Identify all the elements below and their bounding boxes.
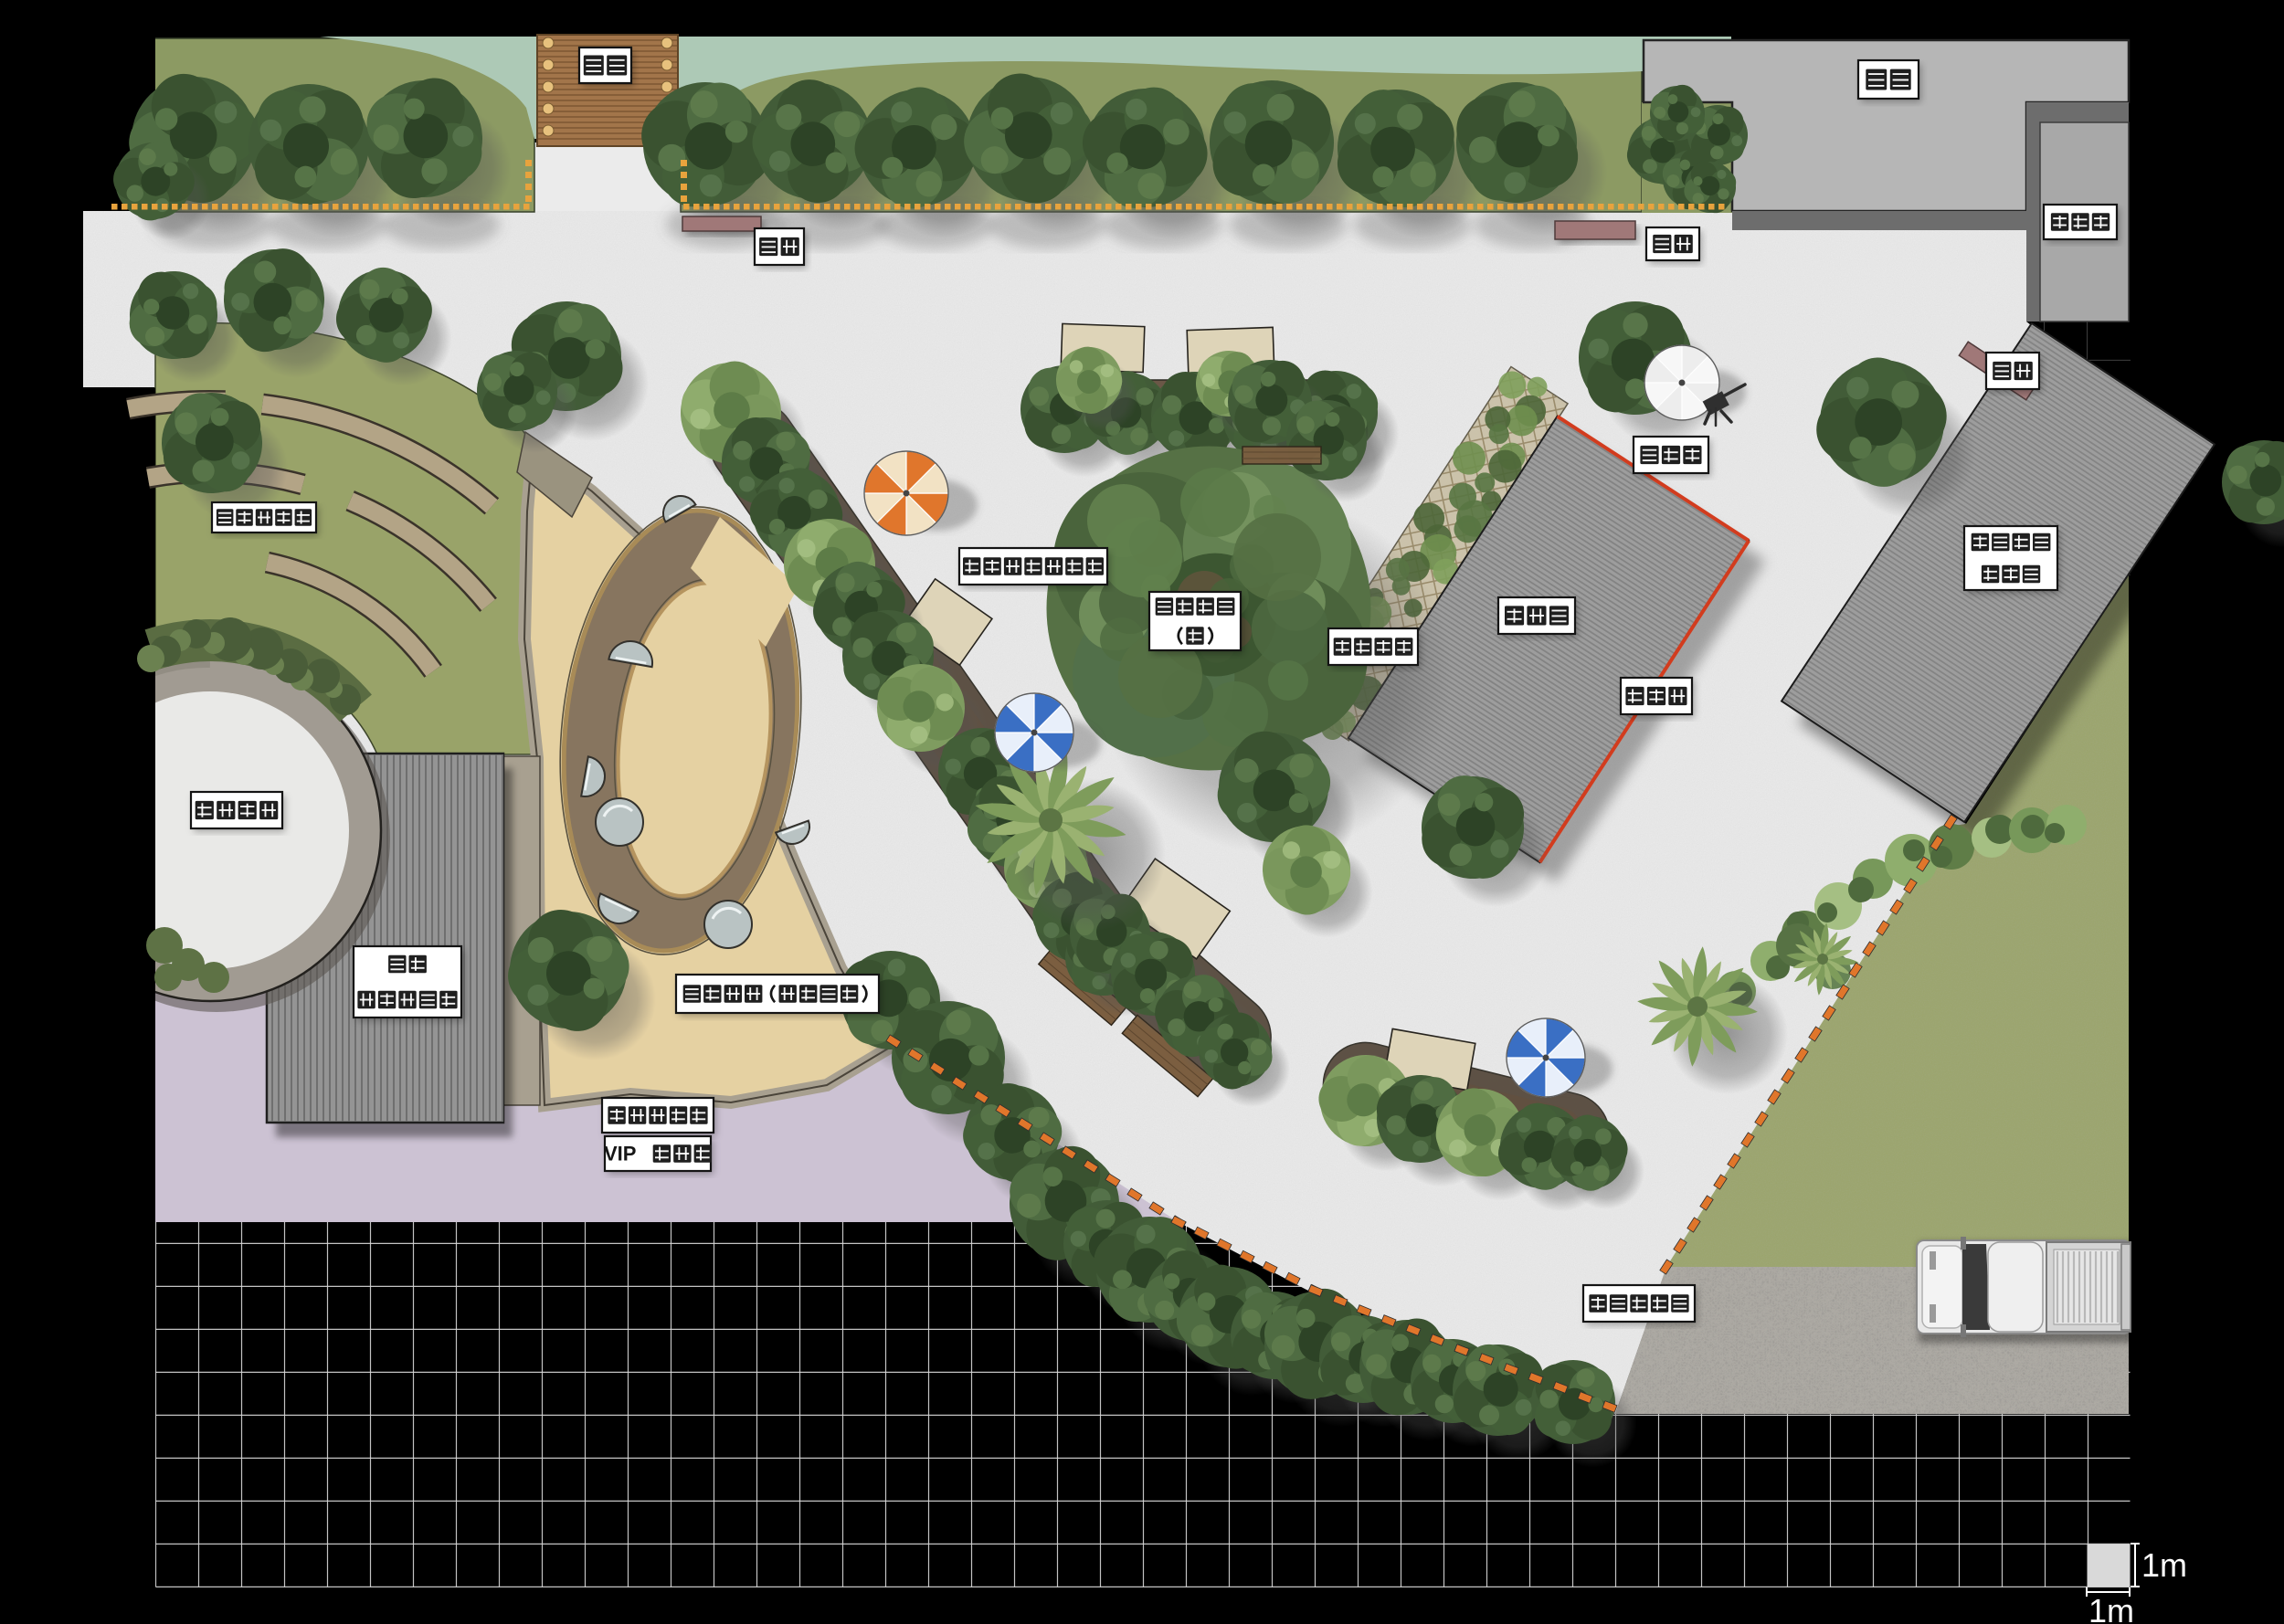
svg-text:VIP: VIP <box>604 1143 636 1165</box>
svg-text:1m: 1m <box>2141 1546 2187 1584</box>
svg-text:1m: 1m <box>2088 1592 2134 1624</box>
